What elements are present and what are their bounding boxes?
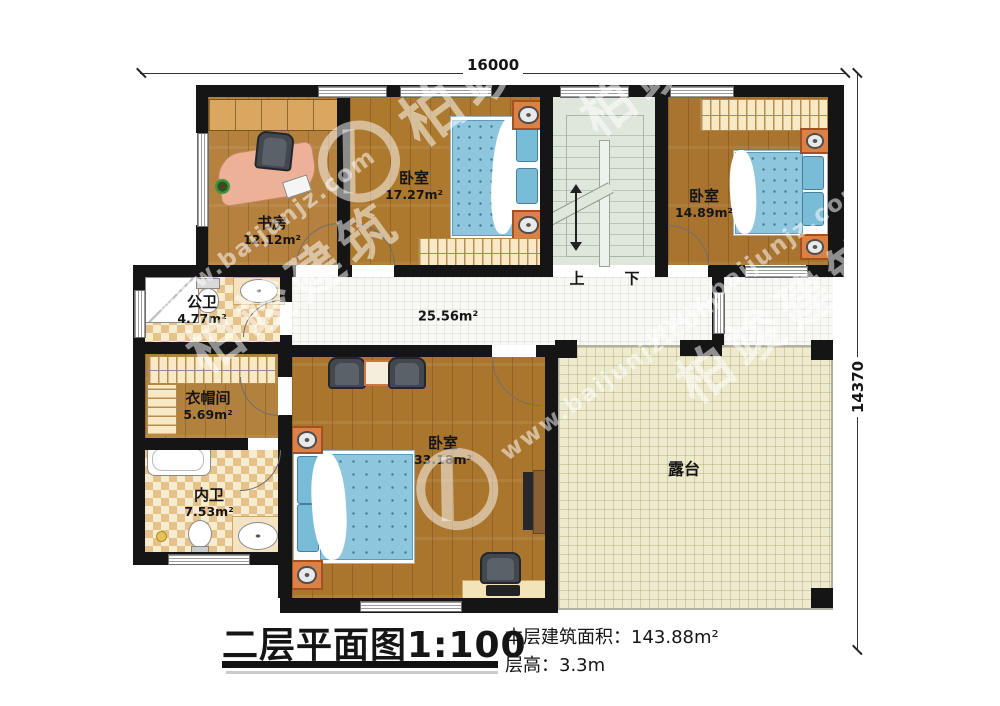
wall: [292, 345, 492, 357]
bedroom-right-pillow: [802, 192, 824, 226]
window: [670, 86, 734, 98]
wardrobe-rail: [701, 115, 827, 116]
room-area: 7.53m²: [184, 504, 233, 519]
room-name: 卧室: [385, 170, 443, 188]
lamp-icon: [518, 106, 539, 125]
wall: [278, 342, 292, 377]
hallway-label: 25.56m²: [418, 309, 478, 324]
floor-height-text: 层高：3.3m: [505, 651, 605, 677]
window: [318, 86, 387, 98]
bedroom-right-nightstand: [800, 234, 830, 260]
room-area: 17.27m²: [385, 187, 443, 202]
wall: [655, 85, 668, 277]
wall: [280, 265, 292, 302]
right-dimension-value: 14370: [849, 357, 867, 417]
master-nightstand: [291, 560, 323, 590]
chair-seat: [487, 558, 514, 580]
wall: [394, 265, 553, 277]
stairs-up-label: 上: [569, 268, 584, 289]
rack-rail: [149, 370, 276, 371]
wardrobe-rail: [419, 253, 541, 254]
window: [197, 133, 209, 227]
terrace-post: [680, 340, 722, 356]
room-area: 4.77m²: [177, 311, 226, 326]
master-nightstand: [291, 426, 323, 454]
wall: [196, 225, 208, 265]
hallway-floor: [292, 277, 833, 345]
wall: [806, 265, 844, 277]
bathtub-inner: [152, 448, 204, 471]
room-name: 卧室: [414, 435, 472, 453]
study-chair: [254, 130, 295, 172]
bedroom-mid-pillow: [516, 168, 538, 204]
wall: [338, 265, 352, 277]
armchair-seat: [395, 363, 419, 385]
room-name: 衣帽间: [183, 390, 232, 408]
terrace-label: 露台: [668, 461, 700, 480]
private-bath-label: 内卫 7.53m²: [184, 487, 233, 519]
room-name: 公卫: [177, 294, 226, 312]
master-armchair: [388, 357, 426, 389]
wall: [828, 85, 844, 277]
room-area: 5.69m²: [183, 407, 232, 422]
floor-height-label: 层高：: [505, 655, 559, 676]
wall: [196, 85, 844, 97]
study-bookcase: [208, 99, 339, 131]
master-armchair: [328, 357, 366, 389]
master-tv: [523, 472, 533, 530]
floor-area-value: 143.88m²: [631, 627, 719, 648]
window: [360, 601, 462, 612]
window: [560, 86, 629, 98]
bedroom-mid-wardrobe: [418, 238, 542, 267]
master-side-table: [364, 360, 390, 386]
window: [713, 292, 725, 334]
window: [168, 554, 250, 565]
sink-basin: [240, 279, 278, 303]
bedroom-right-label: 卧室 14.89m²: [675, 188, 733, 220]
window: [134, 290, 146, 338]
wall: [536, 345, 545, 357]
floor-area-label: 本层建筑面积：: [505, 627, 631, 648]
master-bedroom-label: 卧室 33.18m²: [414, 435, 472, 467]
lamp-icon: [297, 431, 317, 448]
cloakroom-rack-left: [147, 384, 177, 436]
floor-plan-page: 书房 12.12m² 卧室 17.27m² 卧室 14.89m² 公卫 4.77…: [0, 0, 1000, 706]
study-label: 书房 12.12m²: [243, 215, 301, 247]
bedroom-mid-pillow: [516, 126, 538, 162]
room-name: 卧室: [675, 188, 733, 206]
terrace-post: [811, 340, 833, 360]
lamp-icon: [806, 239, 825, 255]
wall: [278, 415, 292, 598]
window: [400, 86, 492, 98]
stair-arrow-up-icon: [570, 184, 582, 193]
study-chair-seat: [261, 137, 287, 167]
floor-drain: [156, 531, 167, 542]
wall: [545, 345, 558, 613]
room-area: 25.56m²: [418, 309, 478, 324]
room-area: 12.12m²: [243, 232, 301, 247]
bedroom-right-pillow: [802, 156, 824, 190]
wall: [196, 97, 208, 133]
master-desk-chair: [480, 552, 521, 584]
wall: [133, 438, 248, 450]
lamp-icon: [806, 133, 825, 149]
wall: [133, 342, 292, 354]
stairs-down-label: 下: [624, 268, 639, 289]
room-name: 内卫: [184, 487, 233, 505]
lamp-icon: [518, 216, 539, 235]
window: [745, 266, 808, 278]
bedroom-mid-label: 卧室 17.27m²: [385, 170, 443, 202]
room-name: 露台: [668, 461, 700, 480]
terrace-post: [555, 340, 577, 358]
floor-height-value: 3.3m: [559, 655, 605, 676]
bedroom-right-nightstand: [800, 128, 830, 154]
bedroom-right-wardrobe: [700, 99, 828, 131]
wall: [540, 85, 553, 277]
sink-basin: [238, 522, 278, 550]
study-plant: [214, 178, 231, 195]
armchair-seat: [335, 363, 359, 385]
room-area: 14.89m²: [675, 205, 733, 220]
stair-direction-line: [575, 192, 577, 242]
stair-stringer: [599, 140, 610, 267]
wall: [708, 265, 745, 277]
room-area: 33.18m²: [414, 452, 472, 467]
toilet-bowl: [188, 520, 212, 548]
room-name: 书房: [243, 215, 301, 233]
title-underline: [222, 661, 498, 668]
wall: [133, 265, 296, 277]
terrace-post: [811, 588, 833, 608]
lamp-icon: [297, 566, 317, 585]
floor-area-text: 本层建筑面积：143.88m²: [505, 623, 719, 649]
public-bath-label: 公卫 4.77m²: [177, 294, 226, 326]
master-desk-keyboard: [486, 585, 520, 596]
wall: [655, 265, 668, 277]
stair-arrow-down-icon: [570, 242, 582, 251]
cloakroom-label: 衣帽间 5.69m²: [183, 390, 232, 422]
title-underline-shadow: [226, 671, 498, 674]
top-dimension-value: 16000: [463, 56, 523, 74]
